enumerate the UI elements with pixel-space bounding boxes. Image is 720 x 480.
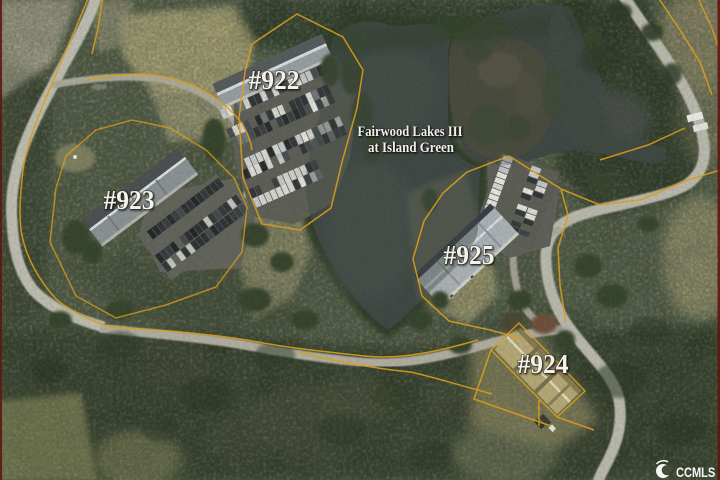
svg-text:at Island Green: at Island Green [368, 140, 454, 156]
svg-text:CCMLS: CCMLS [676, 465, 715, 480]
svg-text:Fairwood Lakes III: Fairwood Lakes III [358, 124, 463, 140]
svg-text:#925: #925 [444, 240, 495, 270]
svg-text:#922: #922 [249, 65, 300, 95]
svg-text:#923: #923 [104, 185, 155, 215]
svg-text:#924: #924 [518, 349, 569, 379]
